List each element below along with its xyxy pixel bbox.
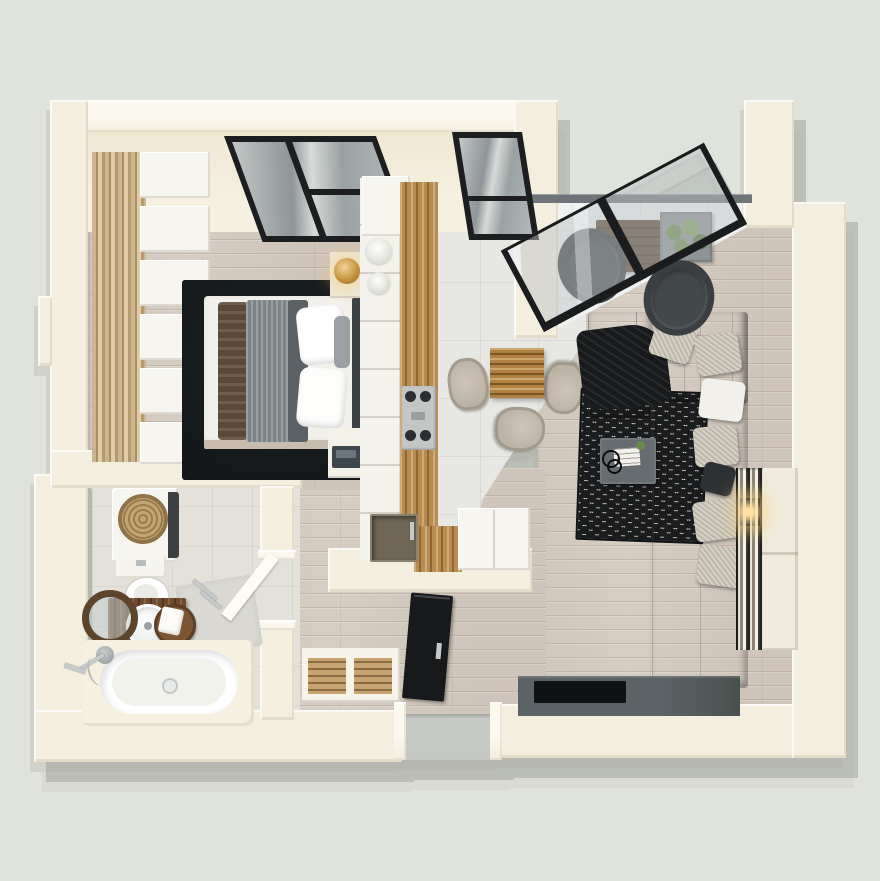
door-handle [436,643,442,659]
hall-group [0,0,880,881]
entry-door-leaf [402,592,453,701]
apartment-plan [0,0,880,881]
shoe-bench-slats [306,656,348,696]
apartment-render-scene [0,0,880,881]
door-edge-highlight [414,595,450,600]
shoe-bench-slats [352,656,394,696]
